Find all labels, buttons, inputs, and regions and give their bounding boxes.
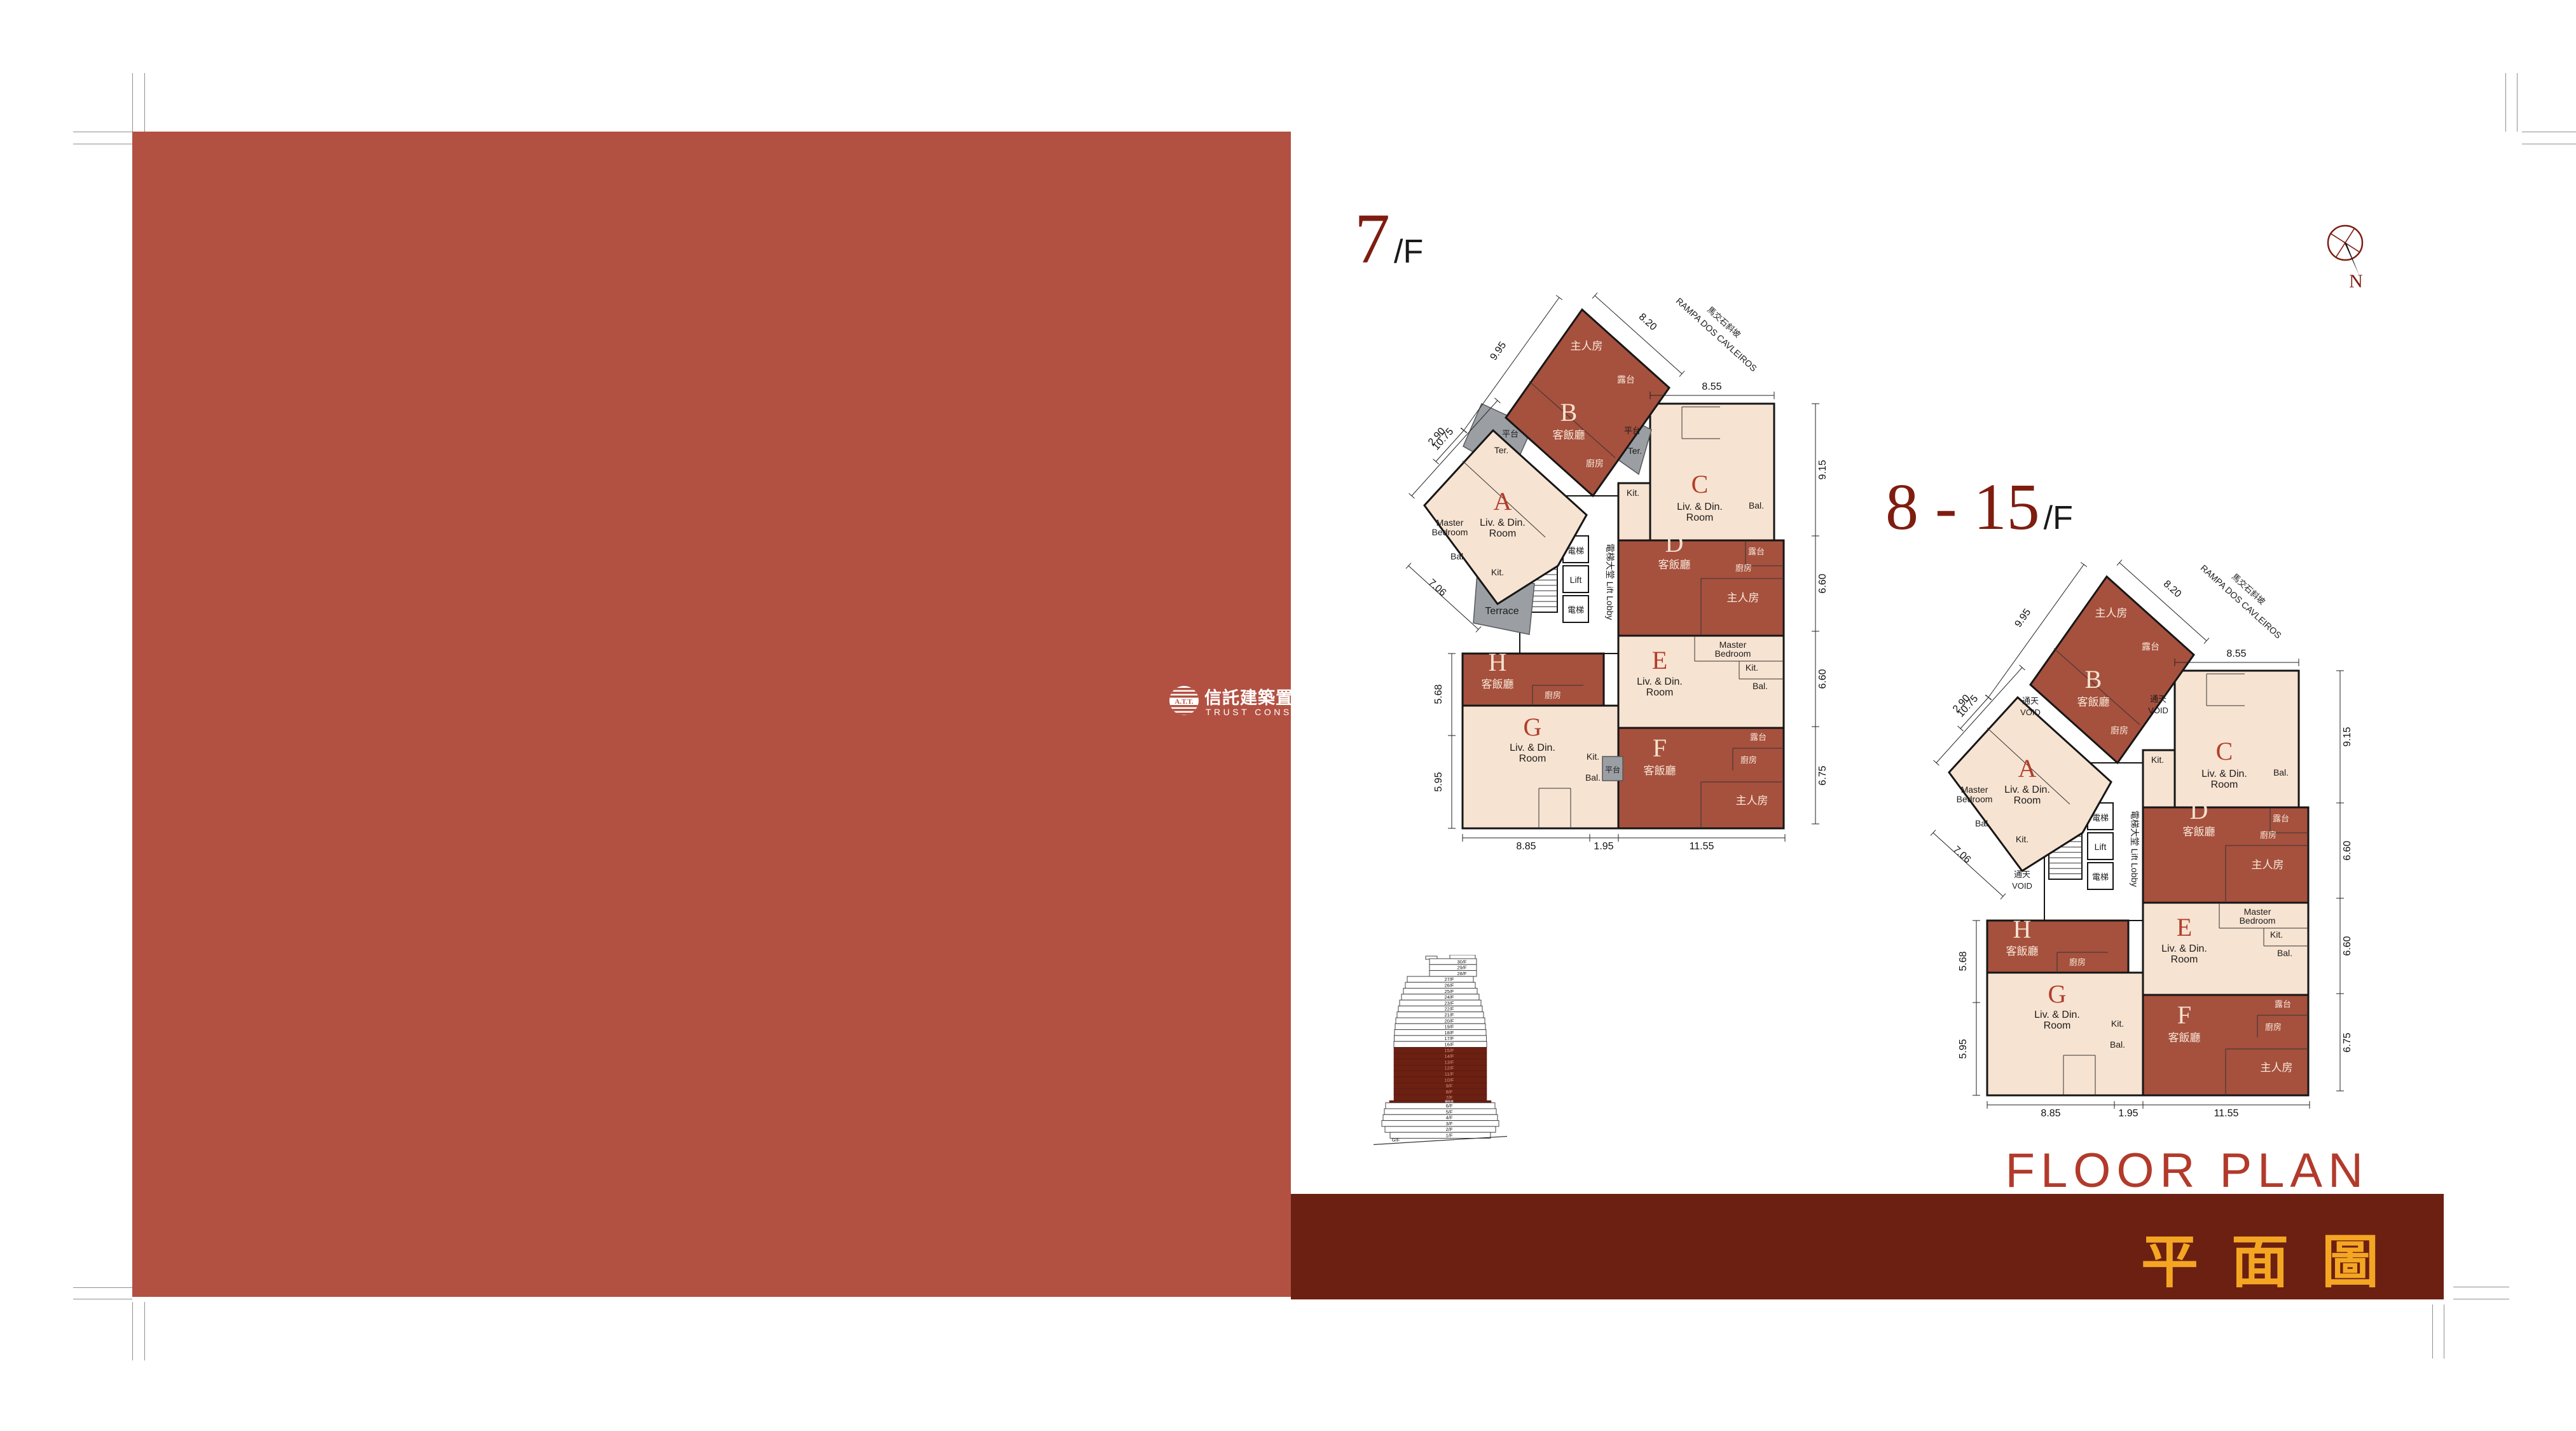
crop-mark — [144, 73, 145, 132]
plan-label: Bal. — [1975, 818, 1990, 828]
plan-label: 廚房 — [2260, 830, 2276, 840]
floor-bar — [1394, 1065, 1487, 1071]
plan-label: Ter. — [1628, 446, 1643, 456]
dimension-label: 7.06 — [1951, 844, 1973, 866]
floor-bar — [1403, 989, 1477, 994]
att-globe-icon: A.T.T. — [1169, 685, 1199, 716]
dimension-label: 5.95 — [1433, 772, 1444, 791]
plan-label: Liv. & Din. — [2161, 943, 2207, 954]
plan-label: Bal. — [1585, 772, 1601, 783]
plan-label: 電梯大堂 Lift Lobby — [2130, 811, 2140, 887]
plan-label: E — [2177, 913, 2192, 941]
plan-label: 電梯 — [2092, 813, 2109, 823]
plan-label: G — [1524, 713, 1542, 741]
dimension-label: 8.85 — [1516, 841, 1536, 852]
plan-label: Kit. — [1491, 567, 1504, 577]
plan-label: B — [1560, 398, 1578, 427]
compass-north-label: N — [2349, 271, 2363, 292]
floor-bar — [1407, 976, 1473, 982]
plan-label: Room — [1489, 528, 1517, 539]
floor-8-15-heading: 8 - 15/F — [1885, 469, 2073, 545]
plan-label: Bal. — [2273, 767, 2289, 777]
dimension-label: 11.55 — [1690, 841, 1714, 852]
floor-8-15-plan: 8.209.952.9010.757.068.559.156.606.606.7… — [1927, 553, 2372, 1125]
crop-mark — [2517, 73, 2517, 132]
floor-plan-title-zh: 平面圖 — [2141, 1215, 2412, 1298]
plan-label: 通天 — [2150, 694, 2166, 704]
plan-label: 客飯廳 — [1644, 765, 1676, 777]
floor-bar — [1394, 1048, 1487, 1053]
dimension-label: 8.55 — [1702, 381, 1721, 392]
dimension-label: 6.60 — [1817, 669, 1828, 688]
floor-label: 5/F — [1446, 1109, 1453, 1114]
floor-bar — [1429, 971, 1477, 976]
plan-label: Bedroom — [2240, 915, 2276, 926]
plan-label: B — [2085, 665, 2102, 694]
floor-bar — [1398, 1006, 1482, 1011]
transfer-plate — [1389, 1100, 1491, 1103]
floor-label: 21/F — [1444, 1012, 1454, 1018]
plan-label: 廚房 — [1735, 563, 1752, 573]
dimension-label: 1.95 — [2118, 1108, 2138, 1119]
plan-label: Liv. & Din. — [1480, 517, 1526, 528]
plan-label: Kit. — [1746, 662, 1758, 673]
dimension-label: 9.95 — [2013, 607, 2033, 629]
floor-label: 16/F — [1444, 1042, 1454, 1048]
plan-label: A — [1494, 487, 1512, 516]
plan-label: Master — [1436, 517, 1464, 528]
plan-label: Room — [1686, 512, 1714, 523]
dimension-line — [1933, 833, 2003, 896]
dimension-tick — [1556, 296, 1562, 300]
floor-label: 6/F — [1446, 1103, 1453, 1109]
plan-label: Room — [2014, 795, 2041, 806]
crop-mark — [73, 1287, 132, 1288]
floor-bar — [1394, 1041, 1487, 1047]
floor-label: 25/F — [1444, 989, 1454, 994]
plan-label: Bal. — [2277, 948, 2292, 958]
floor-bar — [1396, 1018, 1485, 1024]
dimension-label: 6.75 — [2342, 1032, 2353, 1052]
floor-label: 1/F — [1446, 1133, 1453, 1139]
floor-8-15-number: 8 - 15 — [1885, 470, 2040, 544]
floor-label: 27/F — [1444, 976, 1454, 982]
floor-label: 14/F — [1444, 1053, 1454, 1059]
floor-label: 2/F — [1446, 1126, 1453, 1132]
compass-icon: N — [2321, 216, 2378, 292]
floor-label: 4/F — [1446, 1115, 1453, 1121]
crop-mark — [73, 144, 132, 144]
floor-7-plan: 8.209.952.9010.757.068.559.156.606.606.7… — [1402, 286, 1847, 858]
compass-needle — [2344, 241, 2360, 275]
plan-label: D — [2190, 796, 2208, 825]
floor-label: 9/F — [1446, 1083, 1453, 1089]
red-cover-panel: A.T.T. 信託建築置 TRUST CONST — [132, 132, 1291, 1297]
plan-label: 客飯廳 — [2077, 696, 2110, 708]
plan-label: 廚房 — [1740, 755, 1757, 765]
plan-label: 客飯廳 — [1658, 559, 1691, 571]
floor-label: 24/F — [1444, 994, 1454, 1000]
plan-label: VOID — [2012, 881, 2032, 891]
plan-label: 露台 — [2275, 999, 2291, 1009]
floor-8-15-suffix: /F — [2044, 500, 2073, 537]
floor-bar — [1383, 1114, 1498, 1120]
plan-label: Bal. — [2110, 1039, 2125, 1050]
plan-label: D — [1665, 529, 1684, 558]
plan-label: VOID — [2148, 706, 2168, 715]
floor-label: 12/F — [1444, 1065, 1454, 1071]
plan-label: 主人房 — [1736, 795, 1768, 807]
plan-label: 平台 — [1502, 429, 1519, 439]
plan-label: Master — [1961, 784, 1988, 795]
logo-chinese-name: 信託建築置 — [1204, 684, 1291, 709]
plan-label: Kit. — [2016, 834, 2028, 844]
plan-label: Liv. & Din. — [2201, 769, 2247, 779]
plan-label: Lift — [2095, 842, 2107, 852]
floor-label: 30/F — [1457, 959, 1466, 964]
floor-label: 29/F — [1457, 965, 1466, 971]
floor-bar — [1395, 1036, 1487, 1041]
plan-label: Liv. & Din. — [2004, 784, 2050, 795]
floor-bar — [1394, 1089, 1487, 1095]
logo-abbr: A.T.T. — [1174, 698, 1193, 706]
dimension-label: 9.15 — [2342, 727, 2353, 746]
plan-label: Kit. — [2111, 1018, 2124, 1029]
plan-label: H — [2013, 915, 2032, 943]
plan-label: Liv. & Din. — [1510, 743, 1555, 753]
crop-mark — [73, 132, 132, 132]
dimension-label: 11.55 — [2214, 1108, 2239, 1119]
brochure-page: A.T.T. 信託建築置 TRUST CONST 7/F 8 - 15/F 8.… — [0, 0, 2576, 1431]
plan-label: Room — [1646, 687, 1674, 698]
plan-label: F — [2177, 1001, 2191, 1029]
dimension-label: 8.20 — [1637, 312, 1659, 333]
plan-label: Lift — [1570, 575, 1582, 585]
plan-label: 露台 — [1748, 547, 1765, 556]
dimension-label: 8.85 — [2041, 1108, 2060, 1119]
plan-label: 主人房 — [2261, 1062, 2293, 1074]
floor-label: 28/F — [1457, 971, 1466, 976]
floor-bar — [1402, 994, 1479, 1000]
plan-label: 廚房 — [1545, 690, 1561, 700]
crop-mark — [2444, 1304, 2444, 1359]
crop-mark — [144, 1302, 145, 1360]
dimension-label: 6.60 — [2342, 840, 2353, 860]
dimension-label: 5.68 — [1958, 951, 1969, 971]
plan-label: C — [2216, 737, 2233, 765]
floor-label: 15/F — [1444, 1048, 1454, 1053]
floor-bar — [1397, 1012, 1484, 1018]
floor-7-heading: 7/F — [1354, 198, 1423, 280]
plan-label: Ter. — [1494, 445, 1509, 455]
floor-7-suffix: /F — [1394, 233, 1423, 270]
crop-mark — [2453, 1287, 2509, 1287]
att-logo: A.T.T. 信託建築置 TRUST CONST — [1169, 684, 1291, 743]
floor-bar — [1385, 1126, 1496, 1132]
plan-label: 客飯廳 — [1482, 678, 1514, 690]
plan-label: Room — [2044, 1020, 2071, 1031]
plan-label: RAMPA DOS CAVLEIROS — [1674, 296, 1759, 373]
floor-label: 23/F — [1444, 1000, 1454, 1006]
plan-label: Bedroom — [1957, 794, 1993, 804]
floor-bar — [1386, 1103, 1495, 1109]
plan-label: 露台 — [1617, 374, 1635, 385]
dimension-label: 6.60 — [2342, 936, 2353, 955]
dimension-label: 5.68 — [1433, 684, 1444, 704]
title-band: 平面圖 — [1291, 1194, 2444, 1299]
floor-bar — [1394, 1095, 1487, 1100]
plan-label: Liv. & Din. — [1677, 502, 1723, 512]
floor-label: 17/F — [1444, 1036, 1454, 1041]
plan-label: Bedroom — [1715, 648, 1751, 659]
plan-label: 電梯大堂 Lift Lobby — [1605, 544, 1615, 620]
dimension-label: 8.20 — [2161, 579, 2184, 600]
plan-label: H — [1489, 648, 1507, 676]
plan-label: 主人房 — [2095, 607, 2128, 619]
plan-label: Bal. — [1450, 551, 1466, 561]
floor-bar — [1395, 1024, 1485, 1029]
crop-mark — [73, 1299, 132, 1299]
plan-label: Kit. — [2270, 929, 2283, 940]
plan-label: G — [2048, 980, 2067, 1008]
plan-label: VOID — [2020, 708, 2041, 717]
plan-label: 客飯廳 — [1553, 429, 1585, 441]
building-elevation: 30/F29/F28/F27/F26/F25/F24/F23/F22/F21/F… — [1367, 955, 1513, 1152]
plan-label: Kit. — [1627, 488, 1639, 498]
plan-label: 主人房 — [1571, 340, 1603, 352]
crop-mark — [2522, 144, 2576, 144]
plan-label: 廚房 — [2111, 725, 2128, 736]
floor-label: 11/F — [1445, 1071, 1454, 1077]
plan-label: 主人房 — [1727, 592, 1760, 604]
dimension-label: 7.06 — [1426, 577, 1449, 599]
plan-label: Terrace — [1485, 606, 1519, 617]
crop-mark — [132, 1302, 133, 1360]
plan-label: 通天 — [2014, 870, 2030, 879]
plan-label: 通天 — [2022, 696, 2039, 706]
floor-bar — [1429, 959, 1477, 964]
ground-label: G/F — [1392, 1137, 1400, 1143]
dimension-label: 1.95 — [1594, 841, 1613, 852]
crop-mark — [2432, 1304, 2433, 1359]
floor-bar — [1405, 982, 1475, 988]
dimension-label: 6.75 — [1817, 765, 1828, 785]
floor-label: 13/F — [1444, 1059, 1454, 1065]
plan-label: 露台 — [1750, 732, 1767, 742]
crop-mark — [2505, 73, 2506, 132]
plan-label: 客飯廳 — [2183, 826, 2215, 838]
logo-english-name: TRUST CONST — [1206, 707, 1291, 717]
dimension-label: 8.55 — [2226, 648, 2246, 659]
plan-label: 平台 — [1605, 765, 1620, 774]
crop-mark — [132, 73, 133, 132]
plan-label: 露台 — [2142, 641, 2159, 652]
floor-bar — [1390, 1132, 1491, 1138]
dimension-label: 9.95 — [1488, 340, 1508, 362]
plan-label: 電梯 — [1567, 605, 1584, 615]
floor-label: 3/F — [1446, 1121, 1453, 1126]
plan-label: Liv. & Din. — [1637, 676, 1683, 687]
floor-7-number: 7 — [1354, 200, 1390, 278]
plan-label: Room — [2211, 779, 2238, 790]
plan-label: 電梯 — [2092, 872, 2109, 882]
dimension-tick — [2081, 563, 2087, 567]
plan-label: RAMPA DOS CAVLEIROS — [2199, 563, 2283, 640]
plan-label: 露台 — [2273, 814, 2289, 823]
plan-label: 廚房 — [2069, 957, 2086, 967]
plan-label: 主人房 — [2252, 859, 2284, 871]
plan-label: Bal. — [1749, 500, 1764, 510]
floor-bar — [1400, 1000, 1481, 1006]
floor-bar — [1382, 1121, 1499, 1126]
floor-bar — [1394, 1053, 1487, 1059]
crop-mark — [2522, 132, 2576, 132]
plan-label: E — [1652, 646, 1667, 674]
plan-label: 廚房 — [1586, 458, 1604, 469]
floor-bar — [1394, 1059, 1487, 1065]
floor-bar — [1394, 1077, 1487, 1083]
dimension-label: 9.15 — [1817, 460, 1828, 479]
floor-label: 18/F — [1444, 1030, 1454, 1036]
floor-label: 22/F — [1444, 1006, 1454, 1012]
plan-label: Room — [1519, 753, 1546, 764]
plan-label: Kit. — [1587, 751, 1599, 762]
floor-label: 19/F — [1444, 1024, 1454, 1030]
plan-label: A — [2018, 754, 2037, 783]
plan-label: Bal. — [1753, 681, 1768, 691]
plan-label: 客飯廳 — [2168, 1032, 2201, 1044]
floor-bar — [1384, 1109, 1496, 1114]
plan-label: Liv. & Din. — [2034, 1010, 2080, 1020]
floor-bar — [1394, 1071, 1487, 1077]
dimension-line — [1409, 566, 1478, 629]
dimension-label: 5.95 — [1958, 1039, 1969, 1058]
plan-label: 電梯 — [1567, 546, 1584, 556]
floor-label: 26/F — [1444, 983, 1454, 989]
floor-plan-title-en: FLOOR PLAN — [2006, 1143, 2369, 1198]
floor-bar — [1429, 964, 1477, 970]
floor-bar — [1395, 1030, 1486, 1036]
plan-label: 客飯廳 — [2006, 945, 2039, 957]
plan-label: Room — [2171, 954, 2198, 965]
plan-label: 平台 — [1624, 426, 1641, 435]
floor-label: 10/F — [1444, 1077, 1454, 1083]
floor-bar — [1394, 1083, 1487, 1088]
plan-label: 廚房 — [2265, 1022, 2282, 1032]
floor-label: 8/F — [1446, 1089, 1453, 1095]
plan-label: C — [1691, 470, 1709, 498]
plan-label: Kit. — [2151, 755, 2164, 765]
floor-label: 20/F — [1444, 1018, 1454, 1024]
plan-label: Bedroom — [1432, 527, 1468, 537]
crop-mark — [2453, 1299, 2509, 1299]
dimension-label: 6.60 — [1817, 573, 1828, 593]
plan-label: F — [1653, 734, 1667, 762]
